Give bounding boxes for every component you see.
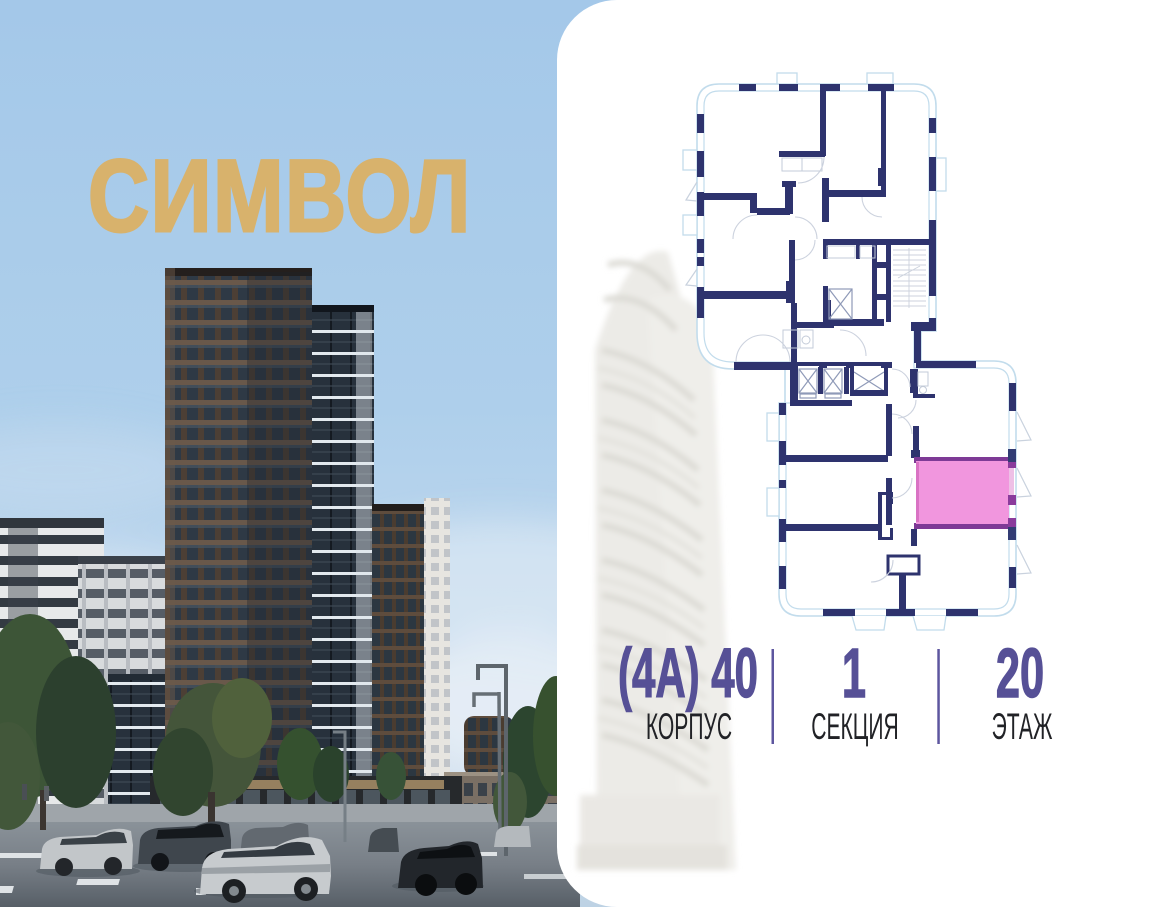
svg-text:СЕКЦИЯ: СЕКЦИЯ: [811, 707, 899, 748]
svg-text:1: 1: [842, 634, 866, 712]
svg-text:20: 20: [996, 634, 1044, 712]
svg-text:(4А) 40: (4А) 40: [618, 635, 758, 713]
svg-text:СИМВОЛ: СИМВОЛ: [88, 138, 472, 252]
svg-text:КОРПУС: КОРПУС: [646, 707, 732, 748]
svg-text:ЭТАЖ: ЭТАЖ: [992, 707, 1053, 748]
